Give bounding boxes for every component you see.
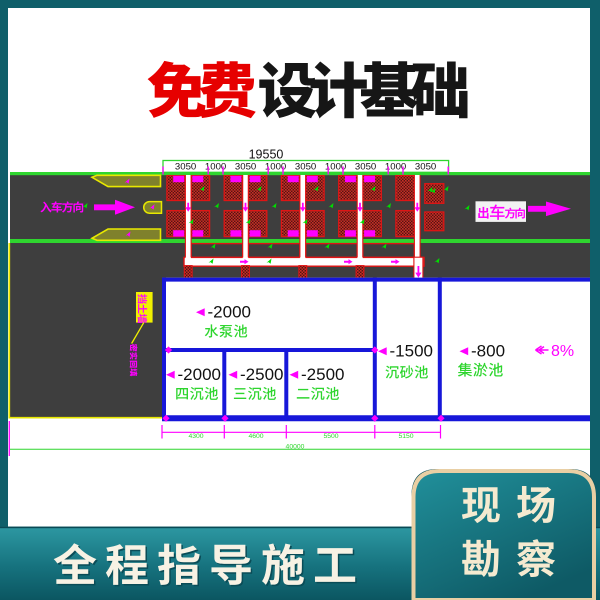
svg-text:40000: 40000 [286,444,305,451]
svg-text:-1500: -1500 [390,342,433,361]
svg-text:3050: 3050 [295,161,316,172]
svg-text:-2500: -2500 [240,365,283,384]
svg-text:3050: 3050 [175,161,196,172]
svg-text:5500: 5500 [323,433,338,440]
svg-text:3050: 3050 [235,161,256,172]
svg-text:3050: 3050 [415,161,436,172]
svg-text:4300: 4300 [188,433,203,440]
svg-text:3050: 3050 [355,161,376,172]
svg-text:8%: 8% [551,343,574,360]
svg-text:-2000: -2000 [208,303,251,322]
svg-text:4600: 4600 [248,433,263,440]
svg-text:-2000: -2000 [178,365,221,384]
svg-text:19550: 19550 [249,148,284,162]
svg-text:5150: 5150 [398,433,413,440]
svg-text:-2500: -2500 [301,365,344,384]
svg-text:-800: -800 [471,342,505,361]
